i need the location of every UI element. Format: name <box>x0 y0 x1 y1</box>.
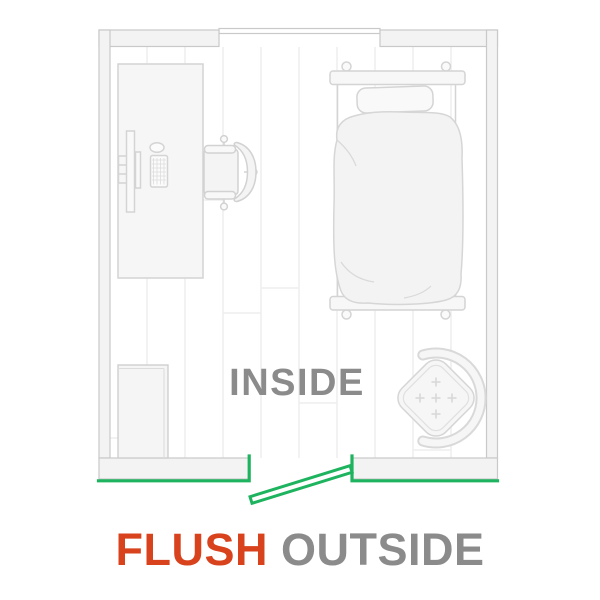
chair-knob <box>221 203 228 210</box>
desk <box>118 64 203 278</box>
pillow-icon <box>357 86 434 114</box>
office-chair <box>204 136 257 210</box>
caption-outside: OUTSIDE <box>281 524 485 575</box>
caption: FLUSH OUTSIDE <box>0 524 600 576</box>
wall-top-left <box>99 30 219 47</box>
wall-top-right <box>380 30 498 47</box>
headboard <box>330 71 465 85</box>
bed-post <box>441 310 450 319</box>
chair-armrest <box>205 146 236 154</box>
wall-right <box>487 30 498 458</box>
pouf-ottoman <box>392 353 481 443</box>
monitor-stand <box>119 156 128 183</box>
door-leaf <box>250 466 352 504</box>
flush-mount-illustration: INSIDE FLUSH OUTSIDE <box>0 0 600 600</box>
bed-post <box>442 62 451 71</box>
keyboard-icon <box>151 156 168 188</box>
bed-post <box>342 310 351 319</box>
monitor-icon <box>127 131 135 212</box>
bed-post <box>342 62 351 71</box>
wall-left <box>99 30 110 458</box>
caption-flush: FLUSH <box>115 524 268 575</box>
dresser <box>118 365 168 458</box>
inside-label: INSIDE <box>229 362 365 405</box>
mouse-icon <box>150 143 164 153</box>
wall-bottom-left <box>99 458 250 479</box>
chair-knob <box>221 136 228 143</box>
window <box>219 29 380 34</box>
wall-bottom-right <box>352 458 498 479</box>
duvet <box>334 112 463 305</box>
monitor-arm <box>136 152 141 188</box>
chair-seat <box>204 149 238 195</box>
bed <box>330 62 465 319</box>
chair-armrest <box>205 192 236 200</box>
floor-plan-svg <box>0 0 600 600</box>
